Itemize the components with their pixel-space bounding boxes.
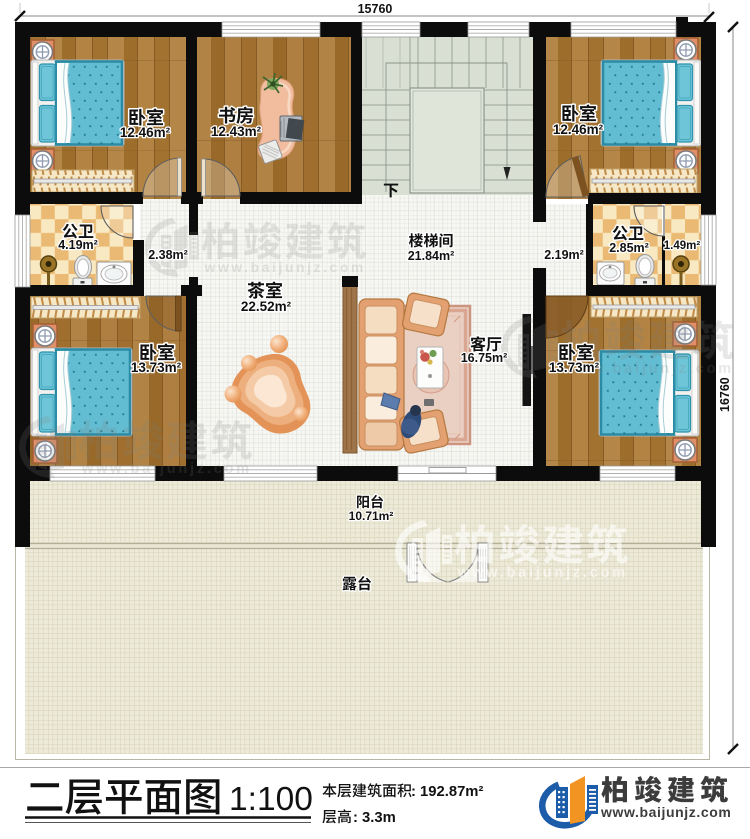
svg-text:www.baijunjz.com: www.baijunjz.com	[81, 461, 252, 477]
svg-text:16760: 16760	[718, 377, 732, 412]
svg-text:2.85m²: 2.85m²	[609, 241, 649, 255]
svg-text:: 192.87m²: : 192.87m²	[411, 784, 483, 800]
svg-text:1.49m²: 1.49m²	[664, 240, 701, 252]
svg-text:21.84m²: 21.84m²	[408, 249, 455, 263]
svg-text:www.baijunjz.com: www.baijunjz.com	[457, 565, 628, 581]
svg-text:12.46m²: 12.46m²	[553, 122, 604, 137]
svg-text:13.73m²: 13.73m²	[131, 360, 182, 375]
svg-text:16.75m²: 16.75m²	[461, 351, 508, 365]
svg-text:12.43m²: 12.43m²	[211, 124, 262, 139]
svg-text:22.52m²: 22.52m²	[241, 299, 292, 314]
svg-text:4.19m²: 4.19m²	[58, 238, 98, 252]
svg-text:www.baijunjz.com: www.baijunjz.com	[600, 804, 731, 820]
svg-text:12.46m²: 12.46m²	[120, 125, 171, 140]
svg-text:2.38m²: 2.38m²	[148, 248, 188, 262]
svg-text:13.73m²: 13.73m²	[549, 360, 600, 375]
svg-text:2.19m²: 2.19m²	[544, 248, 584, 262]
svg-text:1:100: 1:100	[229, 781, 313, 818]
svg-text:15760: 15760	[358, 2, 393, 16]
svg-text:10.71m²: 10.71m²	[349, 509, 394, 523]
svg-text:: 3.3m: : 3.3m	[353, 810, 396, 826]
svg-text:www.baijunjz.com: www.baijunjz.com	[204, 260, 366, 275]
